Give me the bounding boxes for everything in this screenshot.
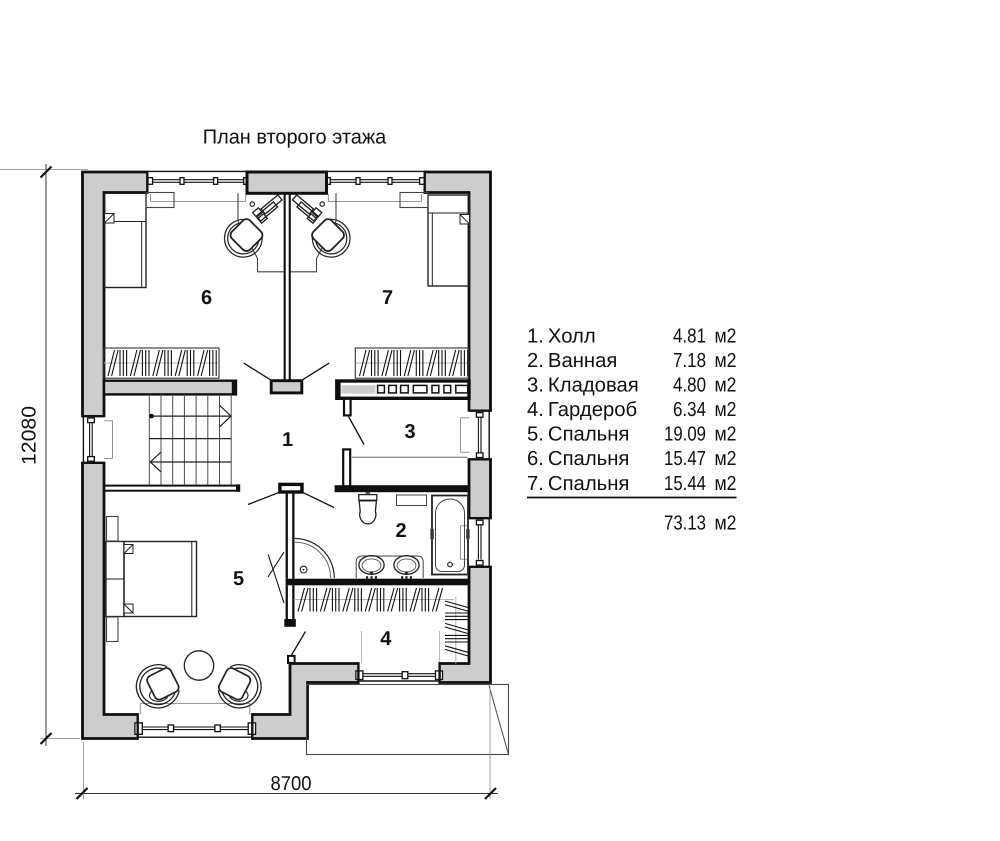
svg-text:3: 3 [404,421,415,443]
svg-text:м2: м2 [715,399,737,421]
svg-text:1: 1 [282,429,293,451]
svg-text:м2: м2 [715,448,737,470]
svg-text:8700: 8700 [271,773,312,795]
svg-text:1.Холл: 1.Холл [527,326,596,348]
svg-text:6: 6 [201,287,212,309]
svg-text:3.Кладовая: 3.Кладовая [527,375,639,397]
svg-text:7: 7 [382,287,393,309]
svg-text:4.Гардероб: 4.Гардероб [527,399,637,421]
svg-text:2.Ванная: 2.Ванная [527,350,617,372]
svg-text:План второго этажа: План второго этажа [203,127,387,149]
svg-text:4.80: 4.80 [673,375,706,397]
svg-text:м2: м2 [715,424,737,446]
svg-text:7.Спальня: 7.Спальня [527,473,629,495]
svg-text:м2: м2 [715,326,737,348]
svg-text:6.34: 6.34 [673,399,706,421]
svg-text:5.Спальня: 5.Спальня [527,424,629,446]
svg-text:м2: м2 [715,350,737,372]
svg-text:12080: 12080 [19,406,41,465]
svg-text:15.47: 15.47 [664,448,706,470]
svg-text:м2: м2 [715,375,737,397]
svg-text:4: 4 [380,628,392,650]
svg-text:15.44: 15.44 [664,473,706,495]
svg-text:19.09: 19.09 [664,424,706,446]
svg-text:7.18: 7.18 [673,350,706,372]
svg-text:5: 5 [233,568,244,590]
svg-text:4.81: 4.81 [673,326,706,348]
svg-text:2: 2 [395,520,406,542]
svg-text:м2: м2 [715,512,737,534]
svg-text:6.Спальня: 6.Спальня [527,448,629,470]
svg-text:м2: м2 [715,473,737,495]
svg-text:73.13: 73.13 [664,512,706,534]
